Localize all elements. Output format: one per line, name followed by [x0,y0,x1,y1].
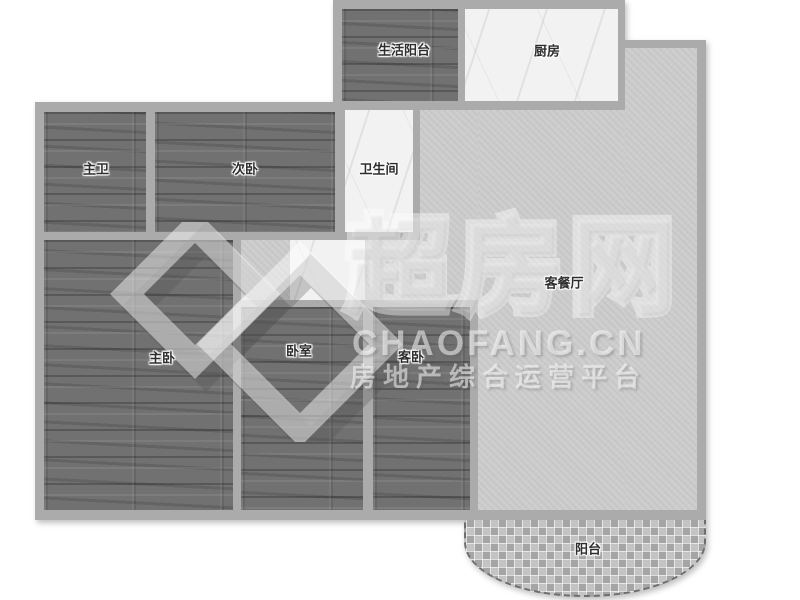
room-labels: 生活阳台 厨房 主卫 次卧 卫生间 客餐厅 主卧 卧室 客卧 阳台 [0,0,800,600]
room-label-second-bedroom: 次卧 [232,159,258,178]
room-label-balcony: 阳台 [575,539,601,558]
room-label-kitchen: 厨房 [534,41,560,60]
room-label-master-bath: 主卫 [83,159,109,178]
floor-plan-screenshot: 超房网 CHAOFANG.CN 房地产综合运营平台 生活阳台 厨房 主卫 次卧 … [0,0,800,600]
room-label-living-dining: 客餐厅 [544,273,583,292]
room-label-life-balcony: 生活阳台 [378,40,430,59]
room-label-bathroom: 卫生间 [359,159,398,178]
room-label-guest-bedroom: 客卧 [398,347,424,366]
room-label-bedroom: 卧室 [286,341,312,360]
room-label-master-bedroom: 主卧 [149,348,175,367]
